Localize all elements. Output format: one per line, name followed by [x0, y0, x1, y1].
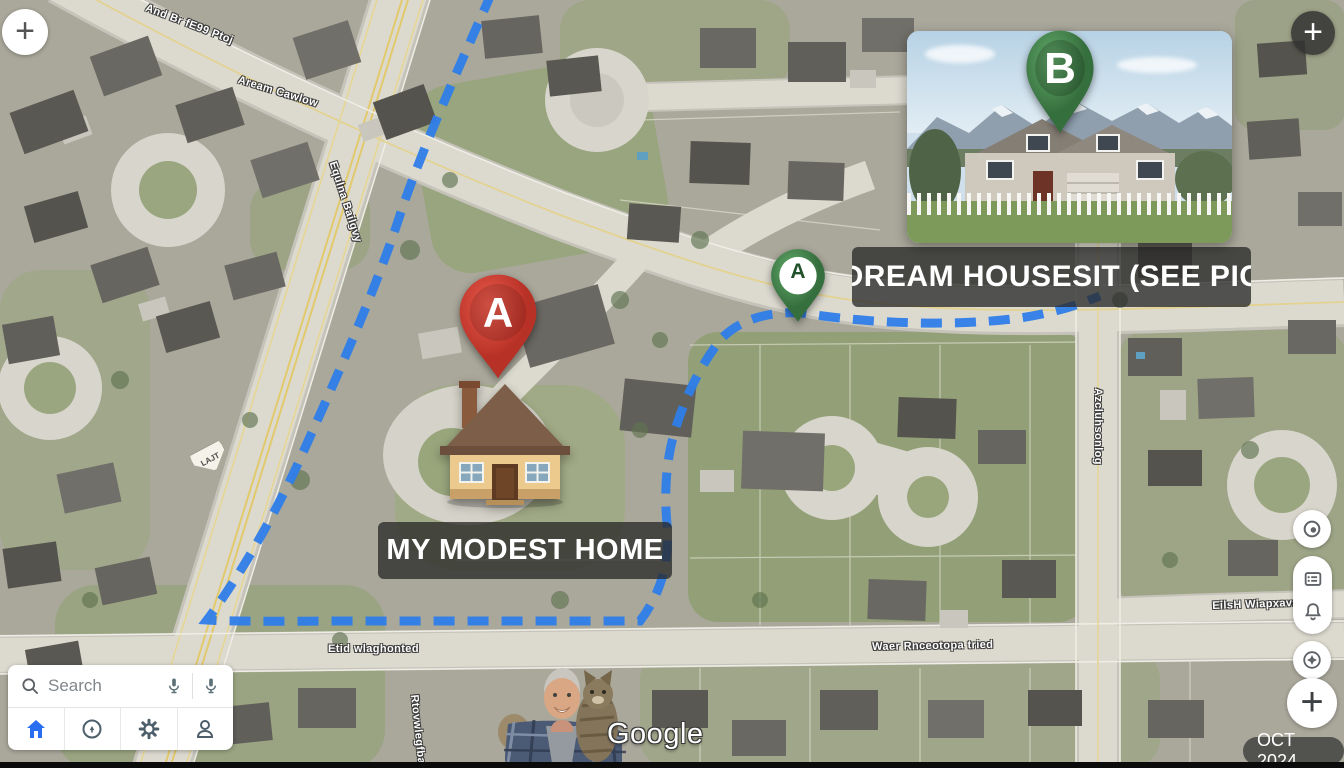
home-tab[interactable]: [8, 708, 64, 750]
divider: [192, 673, 193, 699]
my-location-icon: [1301, 518, 1323, 540]
zoom-in-button-bottom-right[interactable]: +: [1287, 678, 1337, 728]
plus-icon: +: [15, 14, 35, 48]
dream-housesit-callout: DREAM HOUSESIT (SEE PIC: [852, 247, 1251, 307]
person-icon: [193, 717, 217, 741]
marker-b-pin[interactable]: B: [1025, 29, 1095, 135]
inset-picket-fence: [907, 193, 1232, 215]
map-canvas[interactable]: And Br fE99 Ptoj Aream Cawlow Equlna Bai…: [0, 0, 1344, 768]
bottom-letterbox-bar: [0, 762, 1344, 768]
search-input[interactable]: [46, 675, 156, 697]
plus-icon: +: [1303, 15, 1323, 49]
my-location-button[interactable]: [1293, 510, 1331, 548]
magnifier-icon: [20, 676, 40, 696]
street-label: Etid wlaghonted: [328, 643, 419, 655]
explore-icon: [80, 717, 104, 741]
mic-icon[interactable]: [201, 676, 221, 696]
search-row: [8, 665, 233, 708]
dream-housesit-callout-text: DREAM HOUSESIT (SEE PIC: [852, 260, 1251, 294]
marker-a-green-pin[interactable]: A: [770, 248, 826, 323]
marker-a-letter: A: [458, 289, 538, 337]
settings-tab[interactable]: [120, 708, 177, 750]
legend-icon[interactable]: [1302, 568, 1324, 590]
plus-icon: +: [1300, 682, 1323, 722]
notifications-icon[interactable]: [1302, 601, 1324, 623]
compass-icon: [1301, 649, 1323, 671]
gear-icon: [137, 717, 161, 741]
zoom-in-button-top-right[interactable]: +: [1291, 11, 1335, 55]
explore-tab[interactable]: [64, 708, 121, 750]
my-home-callout: MY MODEST HOME: [378, 522, 672, 579]
marker-b-letter: B: [1025, 44, 1095, 94]
street-label: Waer Rnceotopa tried: [872, 639, 993, 653]
search-panel: [8, 665, 233, 750]
profile-tab[interactable]: [177, 708, 234, 750]
street-label: Azcluhsonlog: [1092, 388, 1104, 465]
compass-button[interactable]: [1293, 641, 1331, 679]
google-logo: Google: [607, 718, 704, 751]
marker-a-green-letter: A: [770, 260, 826, 284]
home-icon: [24, 717, 48, 741]
imagery-date-badge: OCT 2024: [1243, 737, 1344, 765]
my-home-callout-text: MY MODEST HOME: [386, 534, 663, 567]
mic-icon[interactable]: [164, 676, 184, 696]
marker-a-red-pin[interactable]: A: [458, 273, 538, 380]
zoom-in-button-top-left[interactable]: +: [2, 9, 48, 55]
cartoon-house-illustration: [438, 376, 572, 508]
search-panel-tabs: [8, 708, 233, 750]
map-tools-pill: [1293, 556, 1332, 634]
